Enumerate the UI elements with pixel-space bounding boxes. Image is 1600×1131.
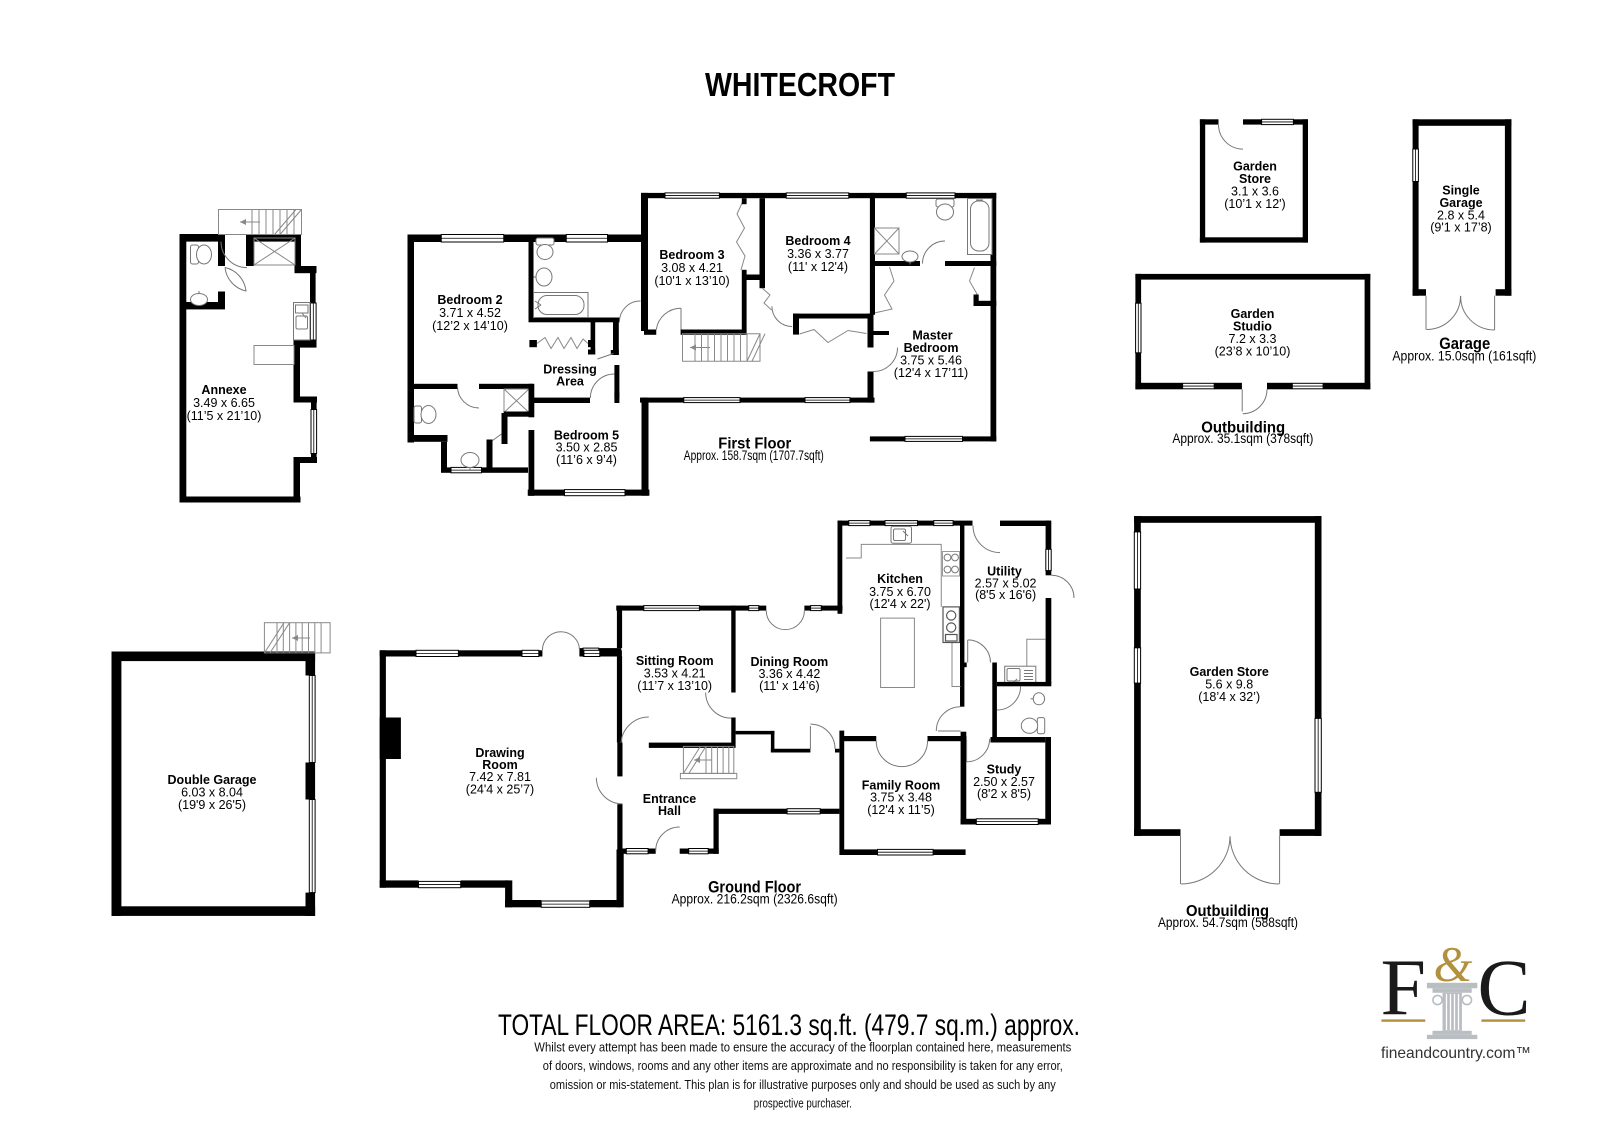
svg-text:Whilst every attempt has been: Whilst every attempt has been made to en… (534, 1040, 1071, 1055)
svg-text:fineandcountry.com™: fineandcountry.com™ (1381, 1045, 1531, 1062)
svg-text:Approx. 35.1sqm (378sqft): Approx. 35.1sqm (378sqft) (1172, 431, 1313, 446)
svg-text:(9'1 x 17’8): (9'1 x 17’8) (1430, 221, 1491, 235)
svg-text:WHITECROFT: WHITECROFT (705, 66, 895, 103)
svg-text:C: C (1478, 945, 1531, 1033)
svg-text:(10'1 x 13’10): (10'1 x 13’10) (654, 274, 729, 288)
svg-text:of doors, windows, rooms and a: of doors, windows, rooms and any other i… (543, 1058, 1063, 1073)
svg-text:Bedroom 2: Bedroom 2 (437, 293, 502, 307)
svg-text:F: F (1381, 945, 1427, 1033)
svg-text:Approx. 158.7sqm (1707.7sqft): Approx. 158.7sqm (1707.7sqft) (684, 448, 824, 463)
svg-text:(18’4 x 32’): (18’4 x 32’) (1198, 690, 1260, 704)
svg-text:(24'4 x 25’7): (24'4 x 25’7) (466, 782, 534, 796)
svg-text:TOTAL FLOOR AREA: 5161.3 sq.ft: TOTAL FLOOR AREA: 5161.3 sq.ft. (479.7 s… (498, 1009, 1080, 1042)
svg-text:(12’2 x 14’10): (12’2 x 14’10) (432, 319, 508, 333)
svg-text:(11’6 x 9’4): (11’6 x 9’4) (556, 453, 617, 467)
svg-text:(23’8 x 10’10): (23’8 x 10’10) (1215, 345, 1291, 359)
svg-text:3.49 x 6.65: 3.49 x 6.65 (193, 396, 255, 410)
svg-text:Annexe: Annexe (201, 383, 246, 397)
svg-text:Bedroom 3: Bedroom 3 (659, 248, 724, 262)
svg-text:Approx. 216.2sqm (2326.6sqft): Approx. 216.2sqm (2326.6sqft) (672, 892, 838, 907)
svg-text:(11' x 12'4): (11' x 12'4) (788, 260, 848, 274)
svg-text:3.71 x 4.52: 3.71 x 4.52 (439, 306, 501, 320)
svg-text:3.36 x 3.77: 3.36 x 3.77 (787, 247, 849, 261)
svg-text:(12'4 x 17’11): (12'4 x 17’11) (894, 366, 968, 380)
svg-text:3.08 x 4.21: 3.08 x 4.21 (661, 261, 723, 275)
svg-text:(11’5 x 21’10): (11’5 x 21’10) (187, 409, 262, 423)
svg-text:Area: Area (556, 375, 585, 389)
svg-text:omission or mis-statement. Thi: omission or mis-statement. This plan is … (550, 1077, 1057, 1092)
svg-text:(12'4 x 22'): (12'4 x 22') (869, 597, 930, 611)
svg-text:Hall: Hall (658, 804, 681, 818)
svg-text:(11' x 14’6): (11' x 14’6) (759, 679, 820, 693)
svg-text:(10’1 x 12'): (10’1 x 12') (1224, 197, 1285, 211)
svg-text:Approx. 54.7sqm (588sqft): Approx. 54.7sqm (588sqft) (1158, 915, 1298, 930)
svg-text:Approx. 15.0sqm (161sqft): Approx. 15.0sqm (161sqft) (1392, 349, 1536, 364)
svg-text:(19'9 x 26'5): (19'9 x 26'5) (178, 798, 246, 812)
svg-text:prospective purchaser.: prospective purchaser. (754, 1095, 852, 1110)
svg-text:(8'2 x 8'5): (8'2 x 8'5) (977, 787, 1031, 801)
svg-text:(12'4 x 11’5): (12'4 x 11’5) (867, 803, 934, 817)
svg-text:(11’7 x 13’10): (11’7 x 13’10) (637, 679, 712, 693)
svg-text:(8'5 x 16'6): (8'5 x 16'6) (975, 588, 1036, 602)
svg-text:Kitchen: Kitchen (877, 572, 923, 586)
svg-text:Bedroom 4: Bedroom 4 (785, 234, 850, 248)
